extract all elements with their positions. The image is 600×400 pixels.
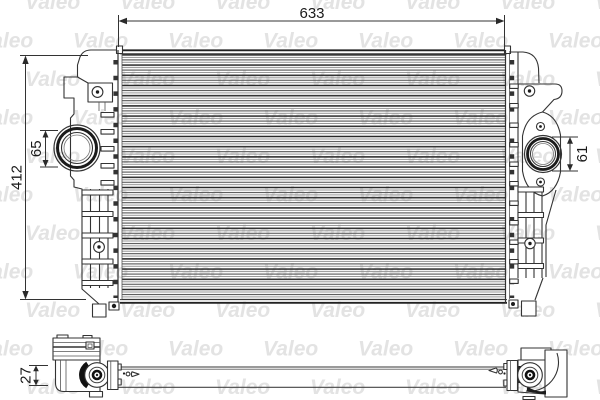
watermark-text: Valeo (595, 0, 600, 14)
right-tank-rungs (510, 84, 519, 283)
watermark-text: Valeo (453, 338, 508, 361)
watermark-text: Valeo (595, 222, 600, 245)
dim-right-port-label: 61 (574, 146, 591, 163)
drawing-canvas: ValeoValeoValeoValeoValeoValeoValeoValeo… (0, 0, 600, 400)
technical-drawing: ValeoValeoValeoValeoValeoValeoValeoValeo… (0, 0, 600, 400)
watermark-text: Valeo (595, 299, 600, 322)
watermark-text: Valeo (548, 184, 600, 207)
core-fins (122, 54, 505, 300)
watermark-text: Valeo (595, 145, 600, 168)
watermark-text: Valeo (0, 261, 33, 284)
watermark-text: Valeo (453, 30, 508, 53)
watermark-text: Valeo (263, 30, 318, 53)
watermark-text: Valeo (0, 338, 33, 361)
watermark-text: Valeo (500, 0, 555, 14)
watermark-text: Valeo (548, 30, 600, 53)
front-view (54, 46, 562, 317)
vent-dot-icon (123, 372, 125, 374)
dim-depth-label: 27 (18, 367, 35, 384)
watermark-text: Valeo (25, 299, 80, 322)
vent-hole-icon (126, 372, 130, 376)
watermark-text: Valeo (358, 30, 413, 53)
watermark-text: Valeo (548, 261, 600, 284)
watermark-text: Valeo (25, 0, 80, 14)
watermark-text: Valeo (548, 107, 600, 130)
flow-arrow-icon (489, 368, 497, 373)
watermark-text: Valeo (0, 30, 33, 53)
dim-left-port-label: 65 (28, 140, 45, 157)
watermark-text: Valeo (25, 222, 80, 245)
watermark-text: Valeo (500, 68, 555, 91)
watermark-text: Valeo (405, 0, 460, 14)
watermark-text: Valeo (168, 30, 223, 53)
watermark-text: Valeo (215, 0, 270, 14)
dim-width-label: 633 (299, 5, 324, 22)
watermark-text: Valeo (263, 338, 318, 361)
watermark-text: Valeo (0, 107, 33, 130)
watermark-text: Valeo (168, 338, 223, 361)
watermark-text: Valeo (358, 338, 413, 361)
dim-height-label: 412 (9, 165, 26, 190)
watermark-text: Valeo (595, 68, 600, 91)
vent-dot-icon (503, 372, 505, 374)
watermark-text: Valeo (73, 107, 128, 130)
watermark-text: Valeo (25, 68, 80, 91)
watermark-text: Valeo (120, 0, 175, 14)
watermark-text: Valeo (595, 376, 600, 399)
vent-hole-icon (499, 370, 503, 374)
